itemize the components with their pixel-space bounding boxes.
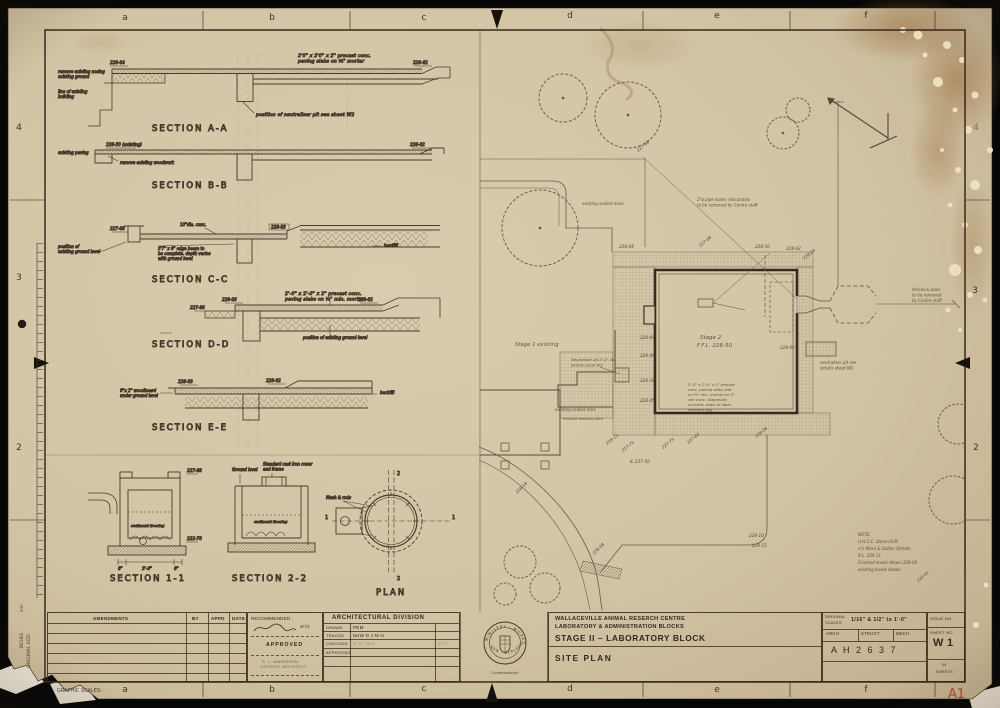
project-line2: LABORATORY & ADMINISTRATION BLOCKS (555, 624, 684, 630)
approved-label: APPROVED (266, 642, 303, 648)
checked-label: CHECKED (326, 641, 348, 646)
job-number: A H 2 6 3 7 (831, 645, 898, 655)
drawing-artwork: a b c d e f a b c d e f 4 3 2 4 3 2 A1 G… (0, 0, 1000, 708)
approved-row-label: APPROVED (326, 650, 351, 655)
appd-header: APPD (211, 616, 225, 621)
in-sheets-label2: SHEETS (936, 670, 953, 674)
photographed-drawing-sheet: a b c d e f a b c d e f 4 3 2 4 3 2 A1 G… (0, 0, 1000, 708)
traced-label: TRACED (326, 633, 344, 638)
checked-date: 9/71 (438, 641, 448, 646)
seal-zone: MINISTRY · WORKS NEW · ZEALAND Commissio… (460, 612, 548, 682)
recommended-label: RECOMMENDED : (251, 616, 294, 621)
drawn-value: PEM (353, 625, 364, 630)
recommended-box: RECOMMENDED : 4/71 APPROVED R. L. ANDERS… (247, 612, 323, 682)
mech-label: MECH (896, 631, 910, 636)
drawn-label: DRAWN (326, 625, 342, 630)
seal-caption: Commissioner (491, 670, 519, 675)
original-scales-label2: SCALES (825, 621, 842, 625)
seal-bottom-text: NEW · ZEALAND (489, 641, 524, 655)
checked-value: P. E. Mon (353, 641, 375, 646)
amendments-table: AMENDMENTS BY APPD DATE (47, 612, 247, 682)
by-header: BY (192, 616, 199, 621)
photo-vignette (0, 0, 1000, 708)
sheet-no-label: SHEET NO (930, 630, 953, 635)
issue-no-label: ISSUE NO: (930, 616, 953, 621)
division-table: ARCHITECTURAL DIVISION DRAWN PEM TRACED … (323, 612, 460, 682)
in-sheets-label: IN (942, 663, 946, 667)
amendments-header: AMENDMENTS (93, 616, 128, 621)
date-header: DATE (232, 616, 245, 621)
district-architect-role: DISTRICT ARCHITECT (261, 665, 306, 669)
project-line1: WALLACEVILLE ANIMAL RESERCH CENTRE (555, 616, 685, 622)
issue-box: ISSUE NO: SHEET NO W 1 IN SHEETS (927, 612, 965, 682)
ministry-of-works-seal: MINISTRY · WORKS NEW · ZEALAND Commissio… (461, 612, 549, 682)
original-scales-label: ORIGINAL (825, 615, 846, 619)
arch-label: ARCH (826, 631, 839, 636)
struct-label: STRUCT (861, 631, 880, 636)
drawing-title: SITE PLAN (555, 653, 612, 663)
sheet-number: W 1 (933, 637, 953, 649)
project-line3: STAGE II – LABORATORY BLOCK (555, 633, 706, 643)
division-header: ARCHITECTURAL DIVISION (332, 615, 424, 621)
traced-value: MJW D J M H (353, 633, 384, 638)
title-block: AMENDMENTS BY APPD DATE RECOMMENDED : 4/… (47, 612, 965, 682)
signature-squiggle (252, 622, 298, 634)
project-title-box: WALLACEVILLE ANIMAL RESERCH CENTRE LABOR… (548, 612, 822, 682)
scales-value: 1/16" & 1/2" to 1'-0" (851, 617, 907, 623)
scales-box: ORIGINAL SCALES 1/16" & 1/2" to 1'-0" AR… (822, 612, 927, 682)
district-architect-name: R. L. ANDERSON (262, 659, 298, 664)
svg-text:NEW · ZEALAND: NEW · ZEALAND (489, 641, 524, 655)
recommended-date: 4/71 (300, 624, 310, 629)
